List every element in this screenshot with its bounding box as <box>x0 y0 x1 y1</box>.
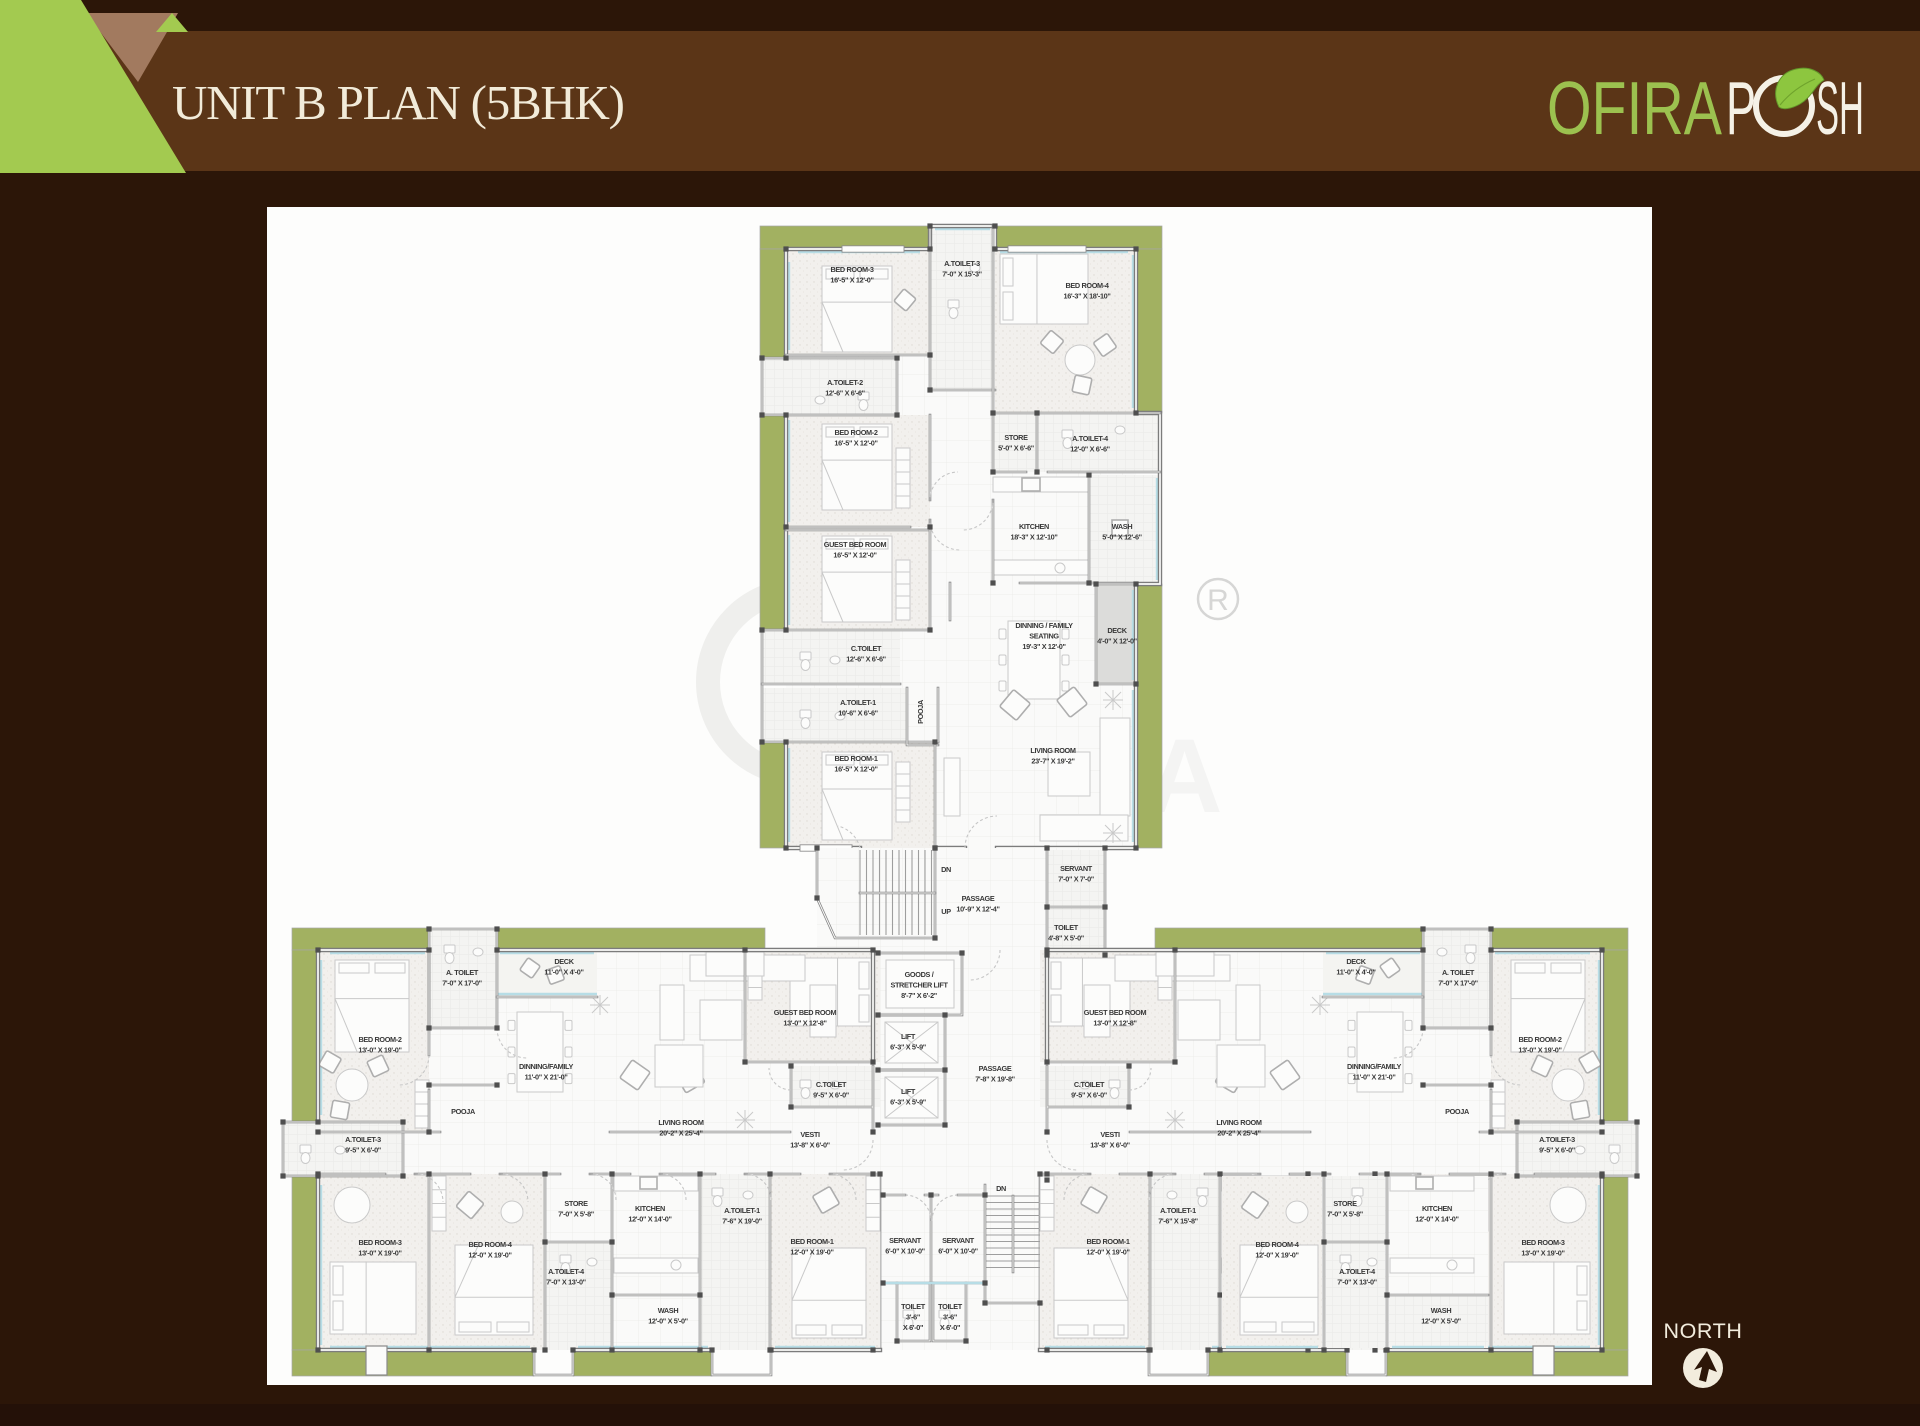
svg-text:A. TOILET7'-0" X 17'-0": A. TOILET7'-0" X 17'-0" <box>1438 968 1478 988</box>
svg-text:POOJA: POOJA <box>451 1107 476 1116</box>
svg-text:BED ROOM-112'-0" X 19'-0": BED ROOM-112'-0" X 19'-0" <box>790 1237 833 1257</box>
svg-text:PASSAGE10'-9" X 12'-4": PASSAGE10'-9" X 12'-4" <box>956 894 999 914</box>
svg-text:A.TOILET-17'-6" X 19'-0": A.TOILET-17'-6" X 19'-0" <box>722 1206 762 1226</box>
svg-text:DN: DN <box>996 1184 1006 1193</box>
svg-text:DINNING/FAMILY11'-0" X 21'-0": DINNING/FAMILY11'-0" X 21'-0" <box>519 1062 574 1082</box>
svg-text:LIVING ROOM20'-2" X 25'-4": LIVING ROOM20'-2" X 25'-4" <box>658 1118 703 1138</box>
svg-text:A.TOILET-17'-6" X 15'-8": A.TOILET-17'-6" X 15'-8" <box>1158 1206 1198 1226</box>
svg-text:SERVANT6'-0" X 10'-0": SERVANT6'-0" X 10'-0" <box>885 1236 925 1256</box>
svg-text:DN: DN <box>941 865 951 874</box>
svg-text:DINNING/FAMILY11'-0" X 21'-0": DINNING/FAMILY11'-0" X 21'-0" <box>1347 1062 1402 1082</box>
svg-text:BED ROOM-213'-0" X 19'-0": BED ROOM-213'-0" X 19'-0" <box>1518 1035 1561 1055</box>
svg-text:A. TOILET7'-0" X 17'-0": A. TOILET7'-0" X 17'-0" <box>442 968 482 988</box>
svg-text:A.TOILET-47'-0" X 13'-0": A.TOILET-47'-0" X 13'-0" <box>1337 1267 1377 1287</box>
svg-text:POOJA: POOJA <box>916 699 925 724</box>
svg-text:A.TOILET-412'-0" X 6'-6": A.TOILET-412'-0" X 6'-6" <box>1070 434 1110 454</box>
svg-text:A.TOILET-212'-6" X 6'-6": A.TOILET-212'-6" X 6'-6" <box>825 378 865 398</box>
svg-text:BED ROOM-112'-0" X 19'-0": BED ROOM-112'-0" X 19'-0" <box>1086 1237 1129 1257</box>
svg-text:C.TOILET9'-5" X 6'-0": C.TOILET9'-5" X 6'-0" <box>813 1080 849 1100</box>
svg-text:BED ROOM-213'-0" X 19'-0": BED ROOM-213'-0" X 19'-0" <box>358 1035 401 1055</box>
svg-text:BED ROOM-313'-0" X 19'-0": BED ROOM-313'-0" X 19'-0" <box>358 1238 401 1258</box>
svg-text:A.TOILET-47'-0" X 13'-0": A.TOILET-47'-0" X 13'-0" <box>546 1267 586 1287</box>
svg-text:P: P <box>1726 66 1756 150</box>
svg-text:LIVING ROOM23'-7" X 19'-2": LIVING ROOM23'-7" X 19'-2" <box>1030 746 1075 766</box>
svg-text:A.TOILET-39'-5" X 6'-0": A.TOILET-39'-5" X 6'-0" <box>1539 1135 1575 1155</box>
svg-text:UP: UP <box>941 907 951 916</box>
svg-text:A.TOILET-39'-5" X 6'-0": A.TOILET-39'-5" X 6'-0" <box>345 1135 381 1155</box>
svg-text:PASSAGE7'-8" X 19'-8": PASSAGE7'-8" X 19'-8" <box>975 1064 1015 1084</box>
svg-text:BED ROOM-116'-5" X 12'-0": BED ROOM-116'-5" X 12'-0" <box>834 754 877 774</box>
svg-text:SERVANT7'-0" X 7'-0": SERVANT7'-0" X 7'-0" <box>1058 864 1094 884</box>
svg-text:POOJA: POOJA <box>1445 1107 1470 1116</box>
svg-text:BED ROOM-316'-5" X 12'-0": BED ROOM-316'-5" X 12'-0" <box>830 265 873 285</box>
svg-text:UNIT B PLAN (5BHK): UNIT B PLAN (5BHK) <box>172 75 625 130</box>
svg-text:NORTH: NORTH <box>1663 1319 1742 1343</box>
svg-text:A.TOILET-110'-6" X 6'-6": A.TOILET-110'-6" X 6'-6" <box>838 698 878 718</box>
svg-text:C.TOILET12'-6" X 6'-6": C.TOILET12'-6" X 6'-6" <box>846 644 886 664</box>
svg-text:BED ROOM-412'-0" X 19'-0": BED ROOM-412'-0" X 19'-0" <box>468 1240 512 1260</box>
svg-text:C.TOILET9'-5" X 6'-0": C.TOILET9'-5" X 6'-0" <box>1071 1080 1107 1100</box>
svg-text:R: R <box>1207 584 1229 617</box>
svg-text:BED ROOM-216'-5" X 12'-0": BED ROOM-216'-5" X 12'-0" <box>834 428 877 448</box>
svg-text:LIVING ROOM20'-2" X 25'-4": LIVING ROOM20'-2" X 25'-4" <box>1216 1118 1261 1138</box>
svg-text:A.TOILET-37'-0" X 15'-3": A.TOILET-37'-0" X 15'-3" <box>942 259 982 279</box>
svg-text:BED ROOM-313'-0" X 19'-0": BED ROOM-313'-0" X 19'-0" <box>1521 1238 1564 1258</box>
svg-text:OFIRA: OFIRA <box>1547 66 1722 150</box>
svg-text:BED ROOM-416'-3" X 18'-10": BED ROOM-416'-3" X 18'-10" <box>1064 281 1111 301</box>
svg-text:SERVANT6'-0" X 10'-0": SERVANT6'-0" X 10'-0" <box>938 1236 978 1256</box>
svg-text:BED ROOM-412'-0" X 19'-0": BED ROOM-412'-0" X 19'-0" <box>1255 1240 1299 1260</box>
